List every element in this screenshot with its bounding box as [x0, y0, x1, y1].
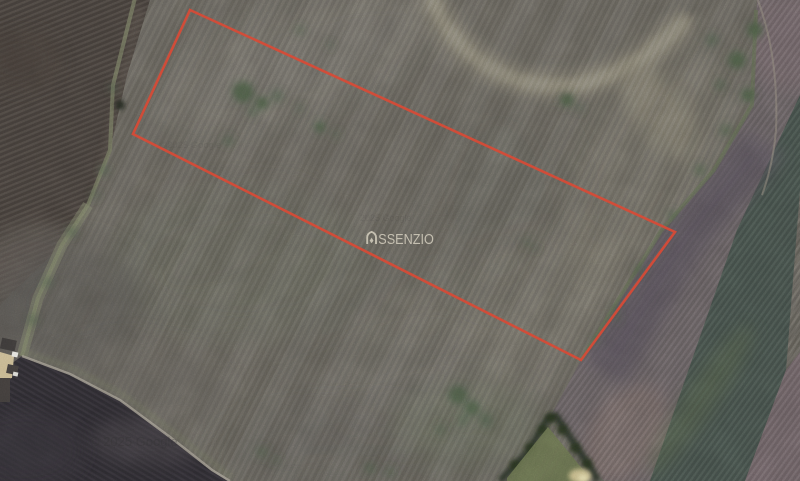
svg-text:2025 Google: 2025 Google	[360, 213, 412, 223]
svg-text:SSENZIO: SSENZIO	[378, 231, 434, 248]
svg-text:©2025 Google: ©2025 Google	[160, 140, 221, 151]
svg-text:© 2025 Google: © 2025 Google	[90, 434, 178, 449]
